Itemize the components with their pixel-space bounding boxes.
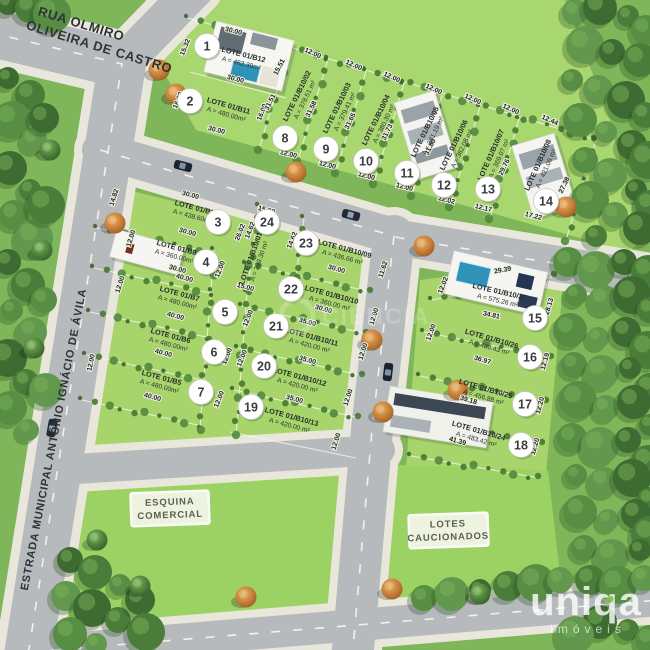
tree-highlight bbox=[3, 203, 16, 217]
hedge-bush bbox=[358, 289, 362, 293]
lot-number: 9 bbox=[323, 142, 330, 156]
tree-highlight bbox=[561, 426, 575, 440]
hedge-bush bbox=[243, 389, 249, 395]
hedge-bush bbox=[92, 399, 98, 405]
tree-highlight bbox=[88, 636, 98, 646]
hedge-bush bbox=[290, 316, 296, 322]
lot-number: 8 bbox=[282, 131, 289, 145]
tree-highlight bbox=[632, 542, 642, 552]
hedge-bush bbox=[460, 464, 466, 470]
hedge-bush bbox=[485, 215, 493, 223]
tree-highlight bbox=[620, 8, 630, 18]
tree-highlight bbox=[575, 538, 587, 550]
hedge-bush bbox=[321, 406, 327, 412]
tree-highlight bbox=[586, 431, 603, 448]
lot-number: 22 bbox=[284, 282, 298, 296]
tree-highlight bbox=[35, 290, 47, 302]
hedge-bush bbox=[337, 61, 343, 67]
lot-number: 1 bbox=[204, 39, 211, 53]
hedge-bush bbox=[430, 374, 436, 380]
lot-number: 3 bbox=[215, 215, 222, 229]
lot-number: 10 bbox=[359, 154, 373, 168]
logo-wordmark: uniqa bbox=[530, 580, 642, 624]
hedge-bush bbox=[356, 92, 364, 100]
sign-line: ESQUINA bbox=[145, 496, 195, 509]
tree-highlight bbox=[108, 216, 117, 225]
hedge-bush bbox=[342, 283, 350, 291]
hedge-bush bbox=[269, 397, 273, 401]
hedge-bush bbox=[241, 343, 247, 349]
tree-highlight bbox=[635, 568, 647, 580]
hedge-bush bbox=[117, 407, 121, 411]
hedge-bush bbox=[234, 344, 238, 348]
tree-highlight bbox=[576, 185, 593, 202]
hedge-bush bbox=[106, 401, 114, 409]
lot-number: 17 bbox=[518, 397, 532, 411]
hedge-bush bbox=[143, 278, 149, 284]
lot-number: 14 bbox=[539, 194, 553, 208]
lot-number: 13 bbox=[481, 182, 495, 196]
tree-highlight bbox=[593, 470, 607, 484]
hedge-bush bbox=[265, 120, 269, 124]
hedge-bush bbox=[535, 473, 541, 479]
hedge-bush bbox=[131, 410, 137, 416]
hedge-bush bbox=[334, 367, 342, 375]
hedge-bush bbox=[199, 372, 205, 378]
tree-highlight bbox=[568, 107, 583, 122]
lot-number: 5 bbox=[222, 305, 229, 319]
tree-highlight bbox=[289, 165, 298, 174]
tree-highlight bbox=[21, 320, 35, 334]
tree-highlight bbox=[621, 133, 635, 147]
hedge-bush bbox=[135, 365, 141, 371]
tree-highlight bbox=[440, 581, 455, 596]
hedge-bush bbox=[321, 67, 327, 73]
hedge-bush bbox=[445, 93, 451, 99]
tree-highlight bbox=[19, 83, 33, 97]
hedge-bush bbox=[319, 278, 323, 282]
hedge-bush bbox=[208, 300, 214, 306]
hedge-bush bbox=[435, 456, 443, 464]
tree-highlight bbox=[90, 533, 99, 542]
lot-number: 23 bbox=[299, 236, 313, 250]
tree-highlight bbox=[628, 47, 643, 62]
tree-highlight bbox=[169, 87, 178, 96]
hedge-bush bbox=[561, 237, 569, 245]
hedge-bush bbox=[354, 331, 358, 335]
tree-highlight bbox=[78, 593, 95, 610]
hedge-bush bbox=[100, 311, 106, 317]
hedge-bush bbox=[447, 461, 451, 465]
hedge-bush bbox=[104, 267, 110, 273]
lot-number: 19 bbox=[244, 400, 258, 414]
tree-highlight bbox=[588, 228, 598, 238]
hedge-bush bbox=[110, 356, 118, 364]
hedge-bush bbox=[301, 144, 307, 150]
tree-highlight bbox=[112, 577, 122, 587]
hedge-bush bbox=[483, 102, 489, 108]
hedge-bush bbox=[251, 305, 257, 311]
hedge-bush bbox=[300, 214, 304, 218]
tree-highlight bbox=[33, 106, 47, 120]
hedge-bush bbox=[582, 176, 586, 180]
hedge-bush bbox=[157, 413, 161, 417]
tree-highlight bbox=[587, 78, 601, 92]
tree-highlight bbox=[376, 405, 385, 414]
hedge-bush bbox=[339, 156, 345, 162]
tree-highlight bbox=[615, 320, 629, 334]
tree-highlight bbox=[618, 280, 635, 297]
lot-number: 15 bbox=[528, 311, 542, 325]
hedge-bush bbox=[325, 364, 331, 370]
hedge-bush bbox=[416, 372, 420, 376]
hedge-bush bbox=[232, 418, 238, 424]
hedge-bush bbox=[208, 287, 212, 291]
tree-highlight bbox=[568, 287, 578, 297]
tree-highlight bbox=[83, 559, 98, 574]
tree-highlight bbox=[0, 70, 10, 80]
hedge-bush bbox=[140, 408, 148, 416]
tree-highlight bbox=[565, 355, 577, 367]
tree-highlight bbox=[385, 582, 394, 591]
hedge-bush bbox=[197, 426, 205, 434]
lot-number: 7 bbox=[198, 385, 205, 399]
hedge-bush bbox=[374, 70, 380, 76]
tree-highlight bbox=[576, 150, 588, 162]
tree-highlight bbox=[635, 18, 649, 32]
tree-highlight bbox=[365, 333, 374, 342]
hedge-bush bbox=[90, 264, 94, 268]
tree-highlight bbox=[557, 250, 571, 264]
lot-number: 4 bbox=[203, 255, 210, 269]
tree-highlight bbox=[16, 272, 31, 287]
tree-highlight bbox=[132, 617, 149, 634]
hedge-bush bbox=[333, 280, 339, 286]
hedge-bush bbox=[262, 133, 268, 139]
hedge-bush bbox=[96, 354, 102, 360]
hedge-bush bbox=[469, 461, 477, 469]
hedge-bush bbox=[232, 431, 240, 439]
tree-highlight bbox=[35, 243, 44, 252]
tree-highlight bbox=[22, 182, 32, 192]
hedge-bush bbox=[352, 108, 356, 112]
hedge-bush bbox=[486, 466, 490, 470]
hedge-bush bbox=[367, 287, 373, 293]
map-canvas: 30.0015.3230.0016.0030.0016.0015.5112.00… bbox=[0, 0, 650, 650]
tree-highlight bbox=[590, 359, 605, 374]
hedge-bush bbox=[121, 362, 125, 366]
hedge-bush bbox=[198, 17, 204, 23]
hedge-bush bbox=[346, 415, 350, 419]
hedge-bush bbox=[82, 351, 86, 355]
hedge-bush bbox=[324, 55, 328, 59]
tree-highlight bbox=[622, 360, 632, 370]
tree-highlight bbox=[571, 30, 588, 47]
hedge-bush bbox=[421, 454, 427, 460]
sign-line: LOTES bbox=[430, 518, 467, 530]
hedge-bush bbox=[529, 115, 537, 123]
hedge-bush bbox=[463, 155, 469, 161]
tree-highlight bbox=[598, 124, 608, 134]
hedge-bush bbox=[379, 155, 383, 159]
lot-number: 6 bbox=[211, 345, 218, 359]
hedge-bush bbox=[203, 307, 211, 315]
tree-highlight bbox=[473, 587, 482, 596]
hedge-bush bbox=[407, 192, 415, 200]
hedge-bush bbox=[303, 272, 311, 280]
hedge-bush bbox=[397, 91, 403, 97]
tree-highlight bbox=[497, 574, 511, 588]
hedge-bush bbox=[254, 146, 262, 154]
hedge-bush bbox=[206, 323, 210, 327]
lot-number: 24 bbox=[260, 215, 274, 229]
tree-highlight bbox=[582, 255, 599, 272]
hedge-bush bbox=[359, 79, 365, 85]
hedge-bush bbox=[125, 319, 129, 323]
tree-highlight bbox=[417, 239, 426, 248]
hedge-bush bbox=[241, 330, 245, 334]
logo-tagline: imóveis bbox=[550, 622, 626, 636]
hedge-bush bbox=[152, 276, 160, 284]
tree-highlight bbox=[628, 182, 638, 192]
hedge-bush bbox=[171, 416, 177, 422]
hedge-bush bbox=[169, 281, 173, 285]
hedge-bush bbox=[307, 404, 311, 408]
tree-highlight bbox=[4, 302, 14, 312]
tree-highlight bbox=[636, 105, 648, 117]
hedge-bush bbox=[407, 452, 411, 456]
hedge-bush bbox=[341, 144, 345, 148]
sign-lotes-caucionados: LOTES CAUCIONADOS bbox=[407, 513, 490, 549]
tree-highlight bbox=[239, 590, 248, 599]
tree-highlight bbox=[606, 205, 618, 217]
hedge-bush bbox=[359, 371, 365, 377]
lot-number: 12 bbox=[437, 178, 451, 192]
hedge-bush bbox=[295, 265, 301, 271]
tree-highlight bbox=[593, 288, 607, 302]
hedge-bush bbox=[86, 308, 90, 312]
tree-highlight bbox=[34, 377, 49, 392]
lot-number: 20 bbox=[257, 359, 271, 373]
lot-number: 16 bbox=[523, 350, 537, 364]
hedge-bush bbox=[492, 202, 498, 208]
tree-highlight bbox=[109, 610, 121, 622]
lot-number: 2 bbox=[187, 94, 194, 108]
tree-highlight bbox=[612, 85, 629, 102]
tree-highlight bbox=[566, 2, 578, 14]
hedge-bush bbox=[303, 132, 307, 136]
hedge-bush bbox=[239, 380, 245, 386]
hedge-bush bbox=[243, 301, 249, 307]
lot-number: 11 bbox=[400, 166, 413, 180]
hedge-bush bbox=[139, 322, 145, 328]
hedge-bush bbox=[448, 333, 456, 341]
hedge-bush bbox=[230, 386, 234, 390]
tree-highlight bbox=[598, 162, 613, 177]
hedge-bush bbox=[350, 373, 354, 377]
hedge-bush bbox=[407, 79, 413, 85]
hedge-bush bbox=[512, 127, 518, 133]
tree-highlight bbox=[20, 422, 30, 432]
hedge-bush bbox=[281, 271, 285, 275]
hedge-bush bbox=[238, 302, 242, 306]
hedge-bush bbox=[400, 79, 404, 83]
tree-highlight bbox=[597, 398, 609, 410]
hedge-bush bbox=[500, 468, 506, 474]
tree-highlight bbox=[32, 190, 49, 207]
sign-line: COMERCIAL bbox=[137, 509, 203, 522]
hedge-bush bbox=[204, 364, 208, 368]
tree-highlight bbox=[625, 502, 639, 516]
tree-highlight bbox=[600, 543, 615, 558]
tree-highlight bbox=[615, 252, 627, 264]
hedge-bush bbox=[210, 246, 214, 250]
hedge-bush bbox=[184, 374, 192, 382]
hedge-bush bbox=[362, 67, 366, 71]
hedge-bush bbox=[569, 224, 575, 230]
tree-highlight bbox=[568, 467, 578, 477]
hedge-bush bbox=[286, 358, 292, 364]
hedge-bush bbox=[330, 409, 338, 417]
sign-esquina-comercial: ESQUINA COMERCIAL bbox=[130, 491, 209, 527]
tree-highlight bbox=[628, 215, 643, 230]
hedge-bush bbox=[526, 476, 530, 480]
tree-highlight bbox=[17, 372, 29, 384]
tree-highlight bbox=[43, 143, 52, 152]
tree-highlight bbox=[590, 330, 600, 340]
hedge-bush bbox=[180, 419, 188, 427]
hedge-bush bbox=[184, 14, 188, 18]
hedge-bush bbox=[93, 224, 97, 228]
tree-highlight bbox=[600, 512, 610, 522]
hedge-bush bbox=[428, 296, 432, 300]
hedge-bush bbox=[78, 396, 82, 400]
hedge-bush bbox=[473, 115, 479, 121]
tree-highlight bbox=[619, 430, 631, 442]
hedge-bush bbox=[114, 313, 122, 321]
tree-highlight bbox=[27, 341, 36, 350]
hedge-bush bbox=[269, 265, 277, 273]
tree-highlight bbox=[558, 317, 573, 332]
tree-highlight bbox=[55, 584, 69, 598]
hedge-bush bbox=[209, 293, 213, 297]
hedge-bush bbox=[460, 339, 464, 343]
hedge-bush bbox=[520, 116, 526, 122]
tree-highlight bbox=[133, 579, 142, 588]
tree-highlight bbox=[58, 621, 73, 636]
lot-number: 18 bbox=[514, 438, 528, 452]
hedge-bush bbox=[355, 413, 361, 419]
hedge-bush bbox=[314, 96, 318, 100]
tree-highlight bbox=[603, 42, 615, 54]
hedge-bush bbox=[318, 80, 326, 88]
tree-highlight bbox=[568, 499, 583, 514]
hedge-bush bbox=[197, 413, 203, 419]
tree-highlight bbox=[564, 72, 574, 82]
hedge-bush bbox=[509, 470, 517, 478]
watermark-text: CIÊNCIA bbox=[322, 302, 431, 329]
tree-highlight bbox=[564, 385, 581, 402]
tree-highlight bbox=[618, 463, 635, 480]
tree-highlight bbox=[622, 389, 637, 404]
hedge-bush bbox=[129, 275, 133, 279]
tree-highlight bbox=[415, 588, 427, 600]
masterplan-map: 30.0015.3230.0016.0030.0016.0015.5112.00… bbox=[0, 0, 650, 650]
tree-highlight bbox=[61, 550, 73, 562]
